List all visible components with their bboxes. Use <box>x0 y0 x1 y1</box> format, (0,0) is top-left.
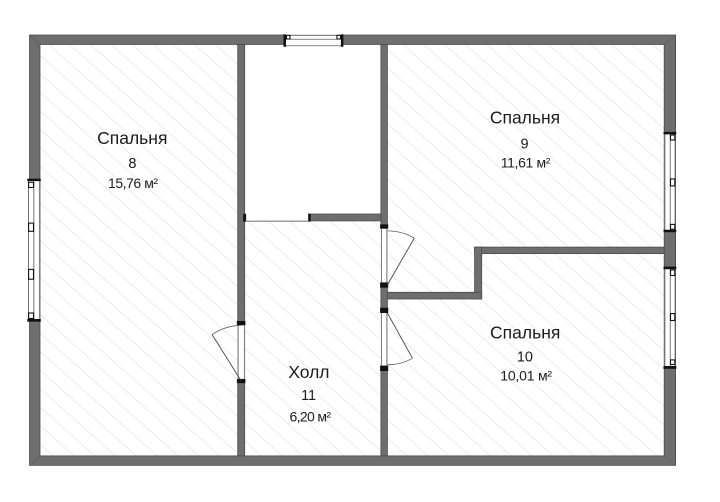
svg-text:Холл: Холл <box>288 362 329 382</box>
svg-text:Спальня: Спальня <box>97 128 167 148</box>
svg-text:8: 8 <box>128 156 136 172</box>
svg-text:6,20 м²: 6,20 м² <box>289 408 331 424</box>
svg-text:9: 9 <box>520 136 528 152</box>
svg-text:10,01 м²: 10,01 м² <box>500 367 552 383</box>
svg-text:11,61 м²: 11,61 м² <box>501 155 551 171</box>
svg-text:10: 10 <box>517 350 533 366</box>
svg-text:15,76 м²: 15,76 м² <box>108 175 158 191</box>
svg-text:Спальня: Спальня <box>490 108 560 128</box>
svg-text:Спальня: Спальня <box>490 322 560 342</box>
svg-text:11: 11 <box>301 388 316 404</box>
